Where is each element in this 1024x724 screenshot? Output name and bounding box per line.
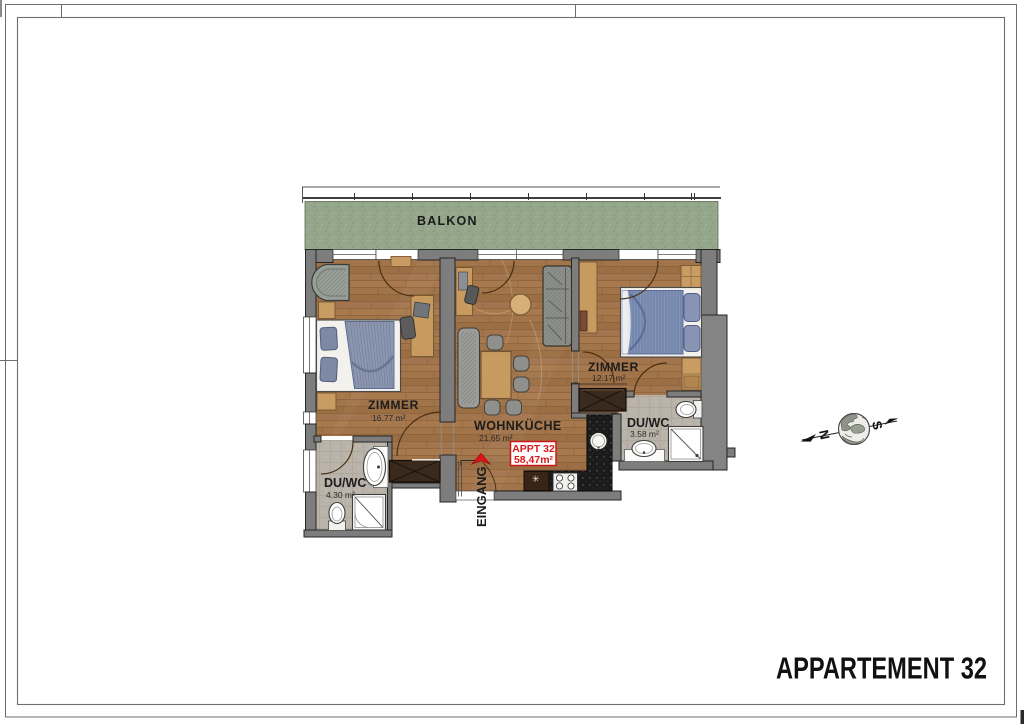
svg-text:3.58 m²: 3.58 m²: [630, 429, 659, 439]
svg-text:DU/WC: DU/WC: [627, 416, 669, 430]
svg-text:12.17 m²: 12.17 m²: [592, 373, 626, 383]
svg-text:ZIMMER: ZIMMER: [368, 398, 419, 412]
svg-text:DU/WC: DU/WC: [324, 476, 366, 490]
svg-text:58,47m²: 58,47m²: [514, 454, 554, 466]
svg-text:✳: ✳: [532, 474, 540, 484]
svg-text:WOHNKÜCHE: WOHNKÜCHE: [474, 418, 562, 433]
svg-text:4.30 m²: 4.30 m²: [326, 490, 355, 500]
svg-text:21.65 m²: 21.65 m²: [479, 433, 513, 443]
svg-text:APPARTEMENT 32: APPARTEMENT 32: [776, 651, 987, 686]
svg-text:16.77 m²: 16.77 m²: [372, 413, 406, 423]
svg-text:ZIMMER: ZIMMER: [588, 360, 639, 374]
svg-text:EINGANG: EINGANG: [474, 466, 489, 527]
svg-text:BALKON: BALKON: [417, 214, 478, 228]
